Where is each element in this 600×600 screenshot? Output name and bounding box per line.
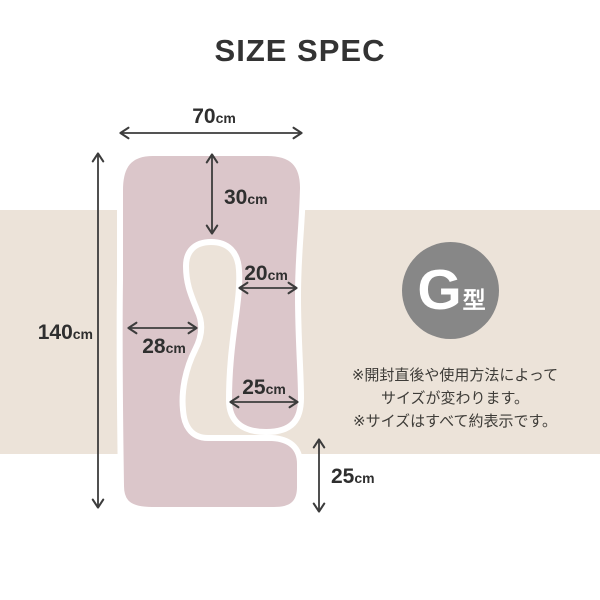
disclaimer-notes: ※開封直後や使用方法によって サイズが変わります。 ※サイズはすべて約表示です。 <box>310 364 600 433</box>
page-title: SIZE SPEC <box>0 33 600 69</box>
note-line-2: サイズが変わります。 <box>310 387 600 410</box>
shape-type-badge: G 型 <box>402 242 499 339</box>
dimension-label-top-width: 70cm <box>192 105 236 128</box>
dimension-label-head-depth: 30cm <box>224 186 268 209</box>
badge-type-suffix: 型 <box>463 289 486 312</box>
badge-letter: G <box>417 262 461 319</box>
note-line-1: ※開封直後や使用方法によって <box>310 364 600 387</box>
size-spec-panel: SIZE SPEC 70cm 140cm 30cm 20cm 28cm 25cm… <box>0 0 600 600</box>
dimension-label-tail-height: 25cm <box>331 465 375 488</box>
note-line-3: ※サイズはすべて約表示です。 <box>310 410 600 433</box>
